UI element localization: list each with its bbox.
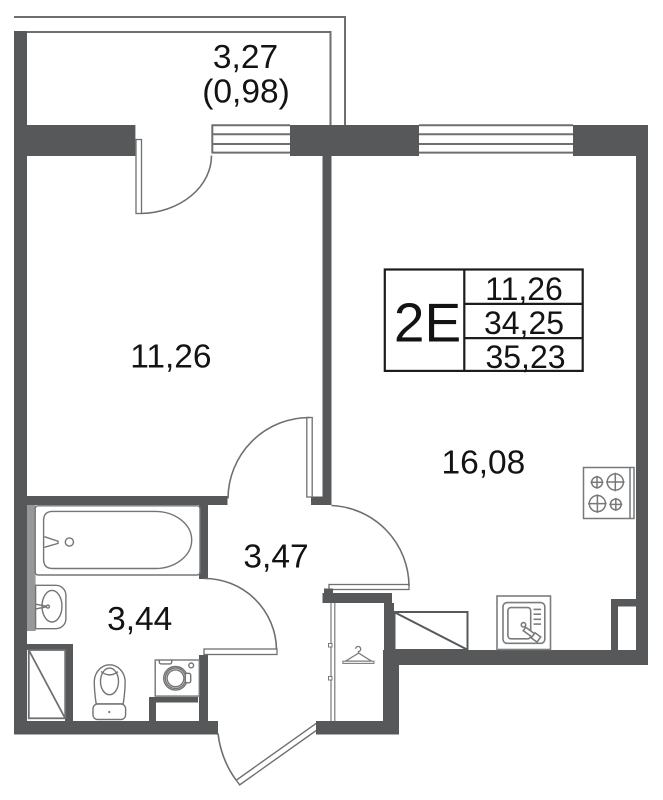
svg-text:(0,98): (0,98) xyxy=(202,74,290,111)
svg-text:11,26: 11,26 xyxy=(485,271,563,307)
svg-text:3,44: 3,44 xyxy=(107,601,172,638)
svg-text:35,23: 35,23 xyxy=(485,339,565,375)
svg-text:3,47: 3,47 xyxy=(243,539,308,576)
svg-text:16,08: 16,08 xyxy=(441,445,525,482)
svg-text:3,27: 3,27 xyxy=(213,39,278,76)
svg-text:11,26: 11,26 xyxy=(130,339,211,376)
svg-text:34,25: 34,25 xyxy=(484,305,564,341)
svg-text:2Е: 2Е xyxy=(394,292,461,354)
